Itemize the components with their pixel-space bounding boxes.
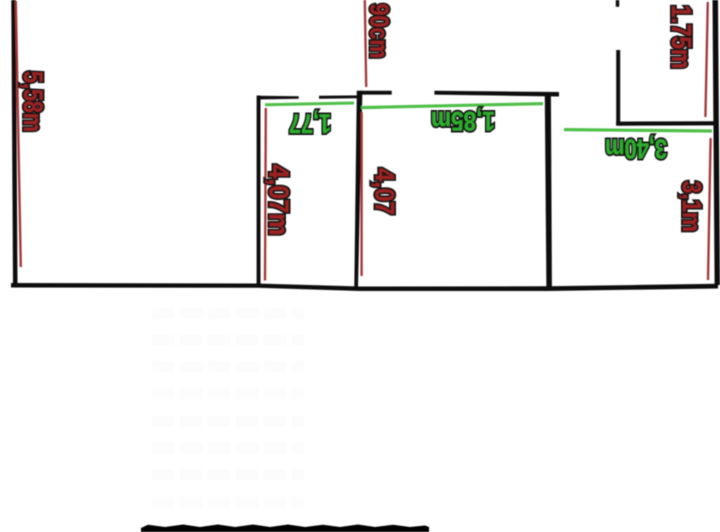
svg-text:3,40m: 3,40m [605,133,667,164]
svg-text:1.75m: 1.75m [666,5,697,69]
svg-text:90cm: 90cm [365,4,395,59]
svg-text:1,85m: 1,85m [431,106,495,136]
svg-text:1,77: 1,77 [289,108,331,138]
svg-text:4,07m: 4,07m [263,165,294,236]
svg-text:5,58m: 5,58m [18,71,48,132]
svg-text:3,1m: 3,1m [677,181,707,232]
svg-text:4,07: 4,07 [369,168,399,215]
